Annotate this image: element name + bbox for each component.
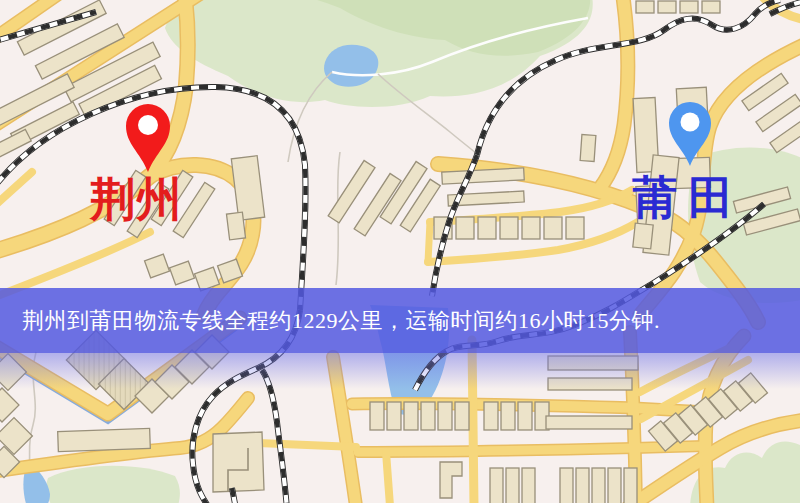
- origin-pin[interactable]: [120, 102, 176, 176]
- destination-label: 莆田: [632, 176, 744, 221]
- route-info-text: 荆州到莆田物流专线全程约1229公里，运输时间约16小时15分钟.: [22, 306, 660, 336]
- origin-label: 荆州: [90, 177, 182, 223]
- destination-pin-icon: [664, 100, 716, 170]
- route-info-banner: 荆州到莆田物流专线全程约1229公里，运输时间约16小时15分钟.: [0, 288, 800, 353]
- map-image: [0, 0, 800, 503]
- origin-pin-icon: [120, 102, 176, 176]
- destination-pin[interactable]: [664, 100, 716, 170]
- map-screenshot: 荆州到莆田物流专线全程约1229公里，运输时间约16小时15分钟. 荆州 莆田: [0, 0, 800, 503]
